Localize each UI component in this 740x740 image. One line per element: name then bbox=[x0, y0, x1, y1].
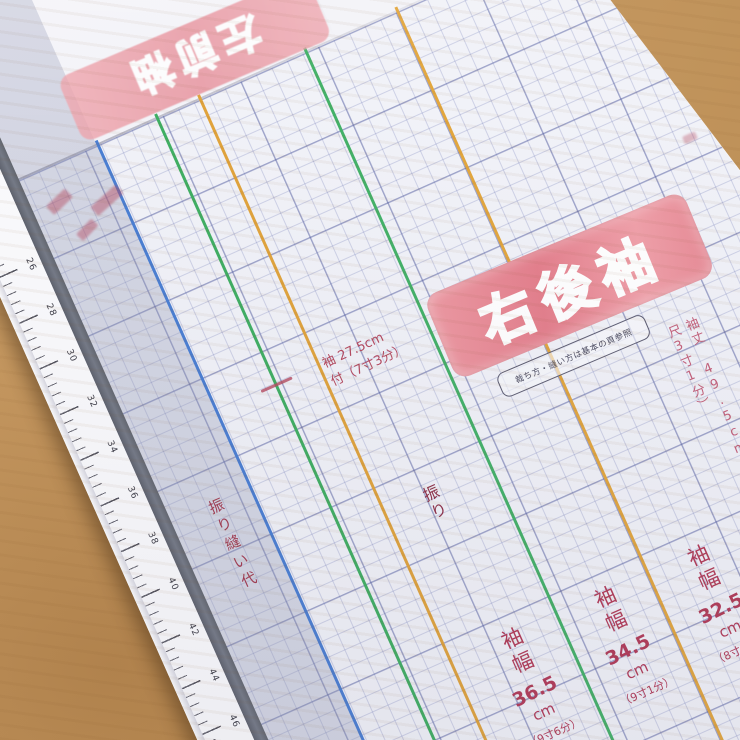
seam-allowance-shaded-band bbox=[0, 0, 495, 740]
yellow-guide-line-1 bbox=[197, 95, 600, 740]
table-corner-top-right bbox=[0, 0, 740, 740]
furi-annotation: 振り bbox=[415, 481, 461, 546]
sleeve-width-value: 34.5 bbox=[598, 628, 658, 672]
red-tick-mark bbox=[260, 376, 292, 393]
paper-end-edge bbox=[608, 0, 740, 172]
wooden-table-background: 262830323436384042444648505254565860 左前袖… bbox=[0, 0, 740, 740]
sleeve-width-unit: cm bbox=[701, 609, 740, 648]
sleeve-width-unit: cm bbox=[515, 692, 573, 731]
faded-upside-down-stamp: 左前袖 bbox=[57, 0, 333, 143]
sleeve-attach-line1: 袖 27.5cm bbox=[319, 318, 409, 374]
ruler-number: 28 bbox=[44, 302, 61, 324]
ruler-number: 34 bbox=[105, 439, 122, 461]
green-guide-line-1 bbox=[154, 113, 557, 740]
edge-ruler-scale: 262830323436384042444648505254565860 bbox=[0, 0, 406, 740]
right-back-sleeve-stamp-label: 右後袖 bbox=[466, 212, 674, 358]
right-back-sleeve-stamp: 右後袖 bbox=[423, 190, 716, 380]
ruler-number: 44 bbox=[206, 668, 223, 690]
blue-guide-line bbox=[95, 140, 498, 740]
faint-red-annotation-mark bbox=[90, 184, 123, 216]
instruction-note-box: 裁ち方・縫い方は基本の頁参照 bbox=[495, 313, 652, 399]
sleeve-width-label: 袖幅 bbox=[586, 581, 635, 641]
kimono-pattern-sheet: 262830323436384042444648505254565860 左前袖… bbox=[0, 0, 740, 740]
sleeve-width-wasai-conversion: （8寸6分） bbox=[711, 631, 740, 668]
sleeve-width-column: 袖幅36.5cm（9寸6分） bbox=[481, 617, 582, 740]
faint-red-annotation-mark bbox=[682, 131, 698, 144]
sleeve-width-wasai-conversion: （9寸6分） bbox=[524, 714, 582, 740]
horizontal-crease-line bbox=[0, 0, 526, 207]
instruction-note-text: 裁ち方・縫い方は基本の頁参照 bbox=[513, 326, 634, 386]
sleeve-width-label: 袖幅 bbox=[493, 623, 542, 683]
sleeve-width-wasai-conversion: （9寸1分） bbox=[617, 673, 675, 710]
sleeve-length-annotation: 袖丈 49.5cm（1尺3寸1分） bbox=[662, 315, 740, 505]
ruler-number: 46 bbox=[227, 713, 244, 735]
ruler-number: 38 bbox=[145, 531, 162, 553]
ruler-number: 32 bbox=[84, 393, 101, 415]
selvage-gray-band bbox=[0, 0, 418, 740]
sleeve-width-unit: cm bbox=[608, 651, 666, 690]
sleeve-width-value: 36.5 bbox=[505, 670, 565, 714]
light-sheen-overlay bbox=[0, 0, 740, 740]
ruler-number: 36 bbox=[125, 485, 142, 507]
sleeve-width-column: 袖幅34.5cm（9寸1分） bbox=[574, 576, 675, 710]
green-guide-line-2 bbox=[303, 47, 706, 740]
sleeve-attach-line2: 付（7寸3分） bbox=[328, 336, 418, 392]
pattern-grid bbox=[7, 0, 740, 740]
sheet-top-margin bbox=[0, 0, 740, 207]
ruler-number: 42 bbox=[186, 622, 203, 644]
sleeve-attach-annotation: 袖 27.5cm 付（7寸3分） bbox=[319, 318, 417, 391]
yellow-guide-line-2 bbox=[394, 7, 740, 740]
ruler-number: 30 bbox=[64, 348, 81, 370]
faded-stamp-label: 左前袖 bbox=[119, 4, 271, 112]
ruler-number: 26 bbox=[23, 256, 40, 278]
sleeve-width-value: 32.5 bbox=[691, 587, 740, 631]
sleeve-width-column: 袖幅32.5cm（8寸6分） bbox=[668, 534, 740, 668]
vertical-fold-line bbox=[225, 0, 336, 38]
ruler-number: 40 bbox=[166, 576, 183, 598]
faint-red-annotation-mark bbox=[76, 218, 98, 241]
sleeve-width-label: 袖幅 bbox=[679, 540, 728, 600]
faint-red-annotation-mark bbox=[46, 188, 73, 215]
paper-edge-highlight bbox=[0, 0, 365, 740]
furi-seam-allowance-annotation: 振り縫い代 bbox=[203, 495, 291, 659]
